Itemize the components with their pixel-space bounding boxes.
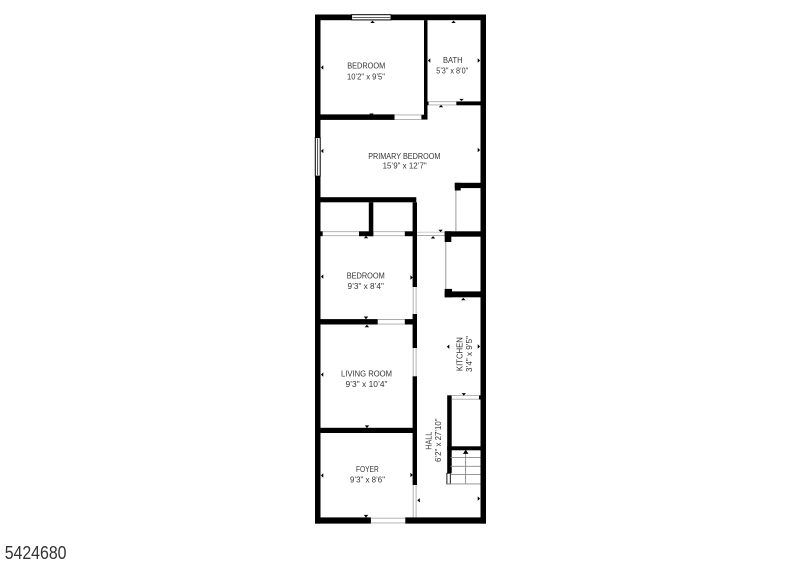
svg-text:KITCHEN: KITCHEN — [455, 337, 464, 371]
svg-text:5’3" x 8’0": 5’3" x 8’0" — [436, 66, 468, 75]
svg-text:15’9" x 12’7": 15’9" x 12’7" — [383, 161, 427, 170]
svg-text:3’4" x 9’5": 3’4" x 9’5" — [465, 336, 474, 372]
svg-text:FOYER: FOYER — [356, 465, 379, 474]
svg-text:6’2" x 27’10": 6’2" x 27’10" — [434, 418, 443, 462]
svg-text:PRIMARY BEDROOM: PRIMARY BEDROOM — [368, 152, 441, 161]
svg-text:BEDROOM: BEDROOM — [347, 272, 385, 281]
svg-text:9’3" x 8’4": 9’3" x 8’4" — [348, 282, 385, 291]
svg-text:9’3" x 10’4": 9’3" x 10’4" — [346, 380, 388, 389]
svg-text:9’3" x 8’6": 9’3" x 8’6" — [350, 475, 385, 484]
svg-text:HALL: HALL — [425, 431, 434, 449]
svg-text:5424680: 5424680 — [5, 542, 67, 563]
svg-text:BEDROOM: BEDROOM — [347, 62, 385, 71]
svg-text:LIVING ROOM: LIVING ROOM — [341, 370, 392, 379]
svg-text:BATH: BATH — [443, 56, 463, 65]
svg-text:10’2" x 9’5": 10’2" x 9’5" — [347, 72, 385, 81]
